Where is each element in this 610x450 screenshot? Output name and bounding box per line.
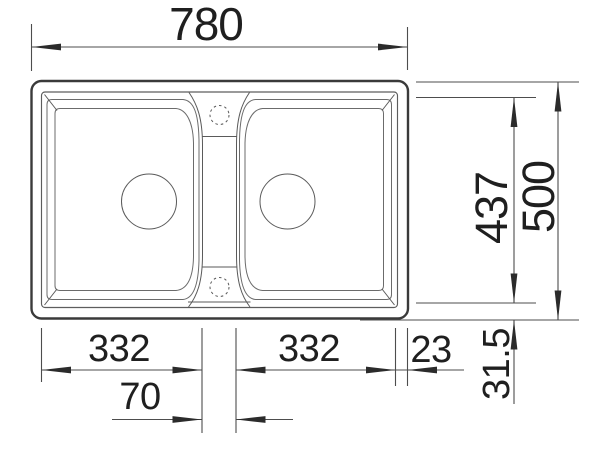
dim-left-bowl-width: 332 [42,328,203,373]
left-bowl-bevel-bottom [55,109,194,291]
center-divider [188,93,251,308]
dim-right-bowl-width: 332 [236,328,396,373]
right-bowl-corner-line-br [382,289,395,305]
arrow-left-icon [42,367,72,374]
left-bowl-corner-line-bl [45,289,58,305]
dim-label-23: 23 [410,329,451,371]
arrow-right-icon [378,44,408,51]
dim-label-70: 70 [119,376,160,418]
right-bowl-corner-line-tr [382,95,395,111]
dim-right-rim-width: 23 [396,329,465,373]
dim-label-332-left: 332 [88,328,150,370]
sink-outer-edge [32,81,409,319]
right-bowl [240,95,395,306]
drawing-canvas: 780 500 437 31.5 332 [0,0,610,450]
left-bowl-corner-line-tl [45,95,58,111]
right-drain-hole [260,174,315,229]
sink-rim-edge [42,92,398,308]
dim-label-780: 780 [169,0,243,50]
arrow-down-icon [511,274,518,304]
left-bowl [45,95,200,306]
dim-label-500: 500 [513,161,564,233]
tap-hole-bottom [210,278,229,297]
dim-rim-depth: 31.5 [476,320,518,404]
sink-dimension-drawing: 780 500 437 31.5 332 [0,0,610,450]
arrow-up-icon [511,98,518,128]
arrow-right-icon [173,367,203,374]
tap-hole-top [210,106,229,125]
arrow-right-icon [173,416,203,423]
arrow-left-icon [236,416,266,423]
arrow-right-icon [366,367,396,374]
dim-label-437: 437 [466,172,517,244]
sink-outline [32,81,409,319]
dim-overall-width: 780 [32,0,408,71]
arrow-left-icon [236,367,266,374]
right-bowl-bevel-bottom [245,109,384,291]
left-drain-hole [122,174,177,229]
right-bowl-bevel-top [240,100,392,300]
arrow-down-icon [555,291,562,321]
arrow-up-icon [555,82,562,112]
dim-label-332-right: 332 [278,328,340,370]
arrow-left-icon [32,44,62,51]
dim-label-31-5: 31.5 [476,328,518,400]
